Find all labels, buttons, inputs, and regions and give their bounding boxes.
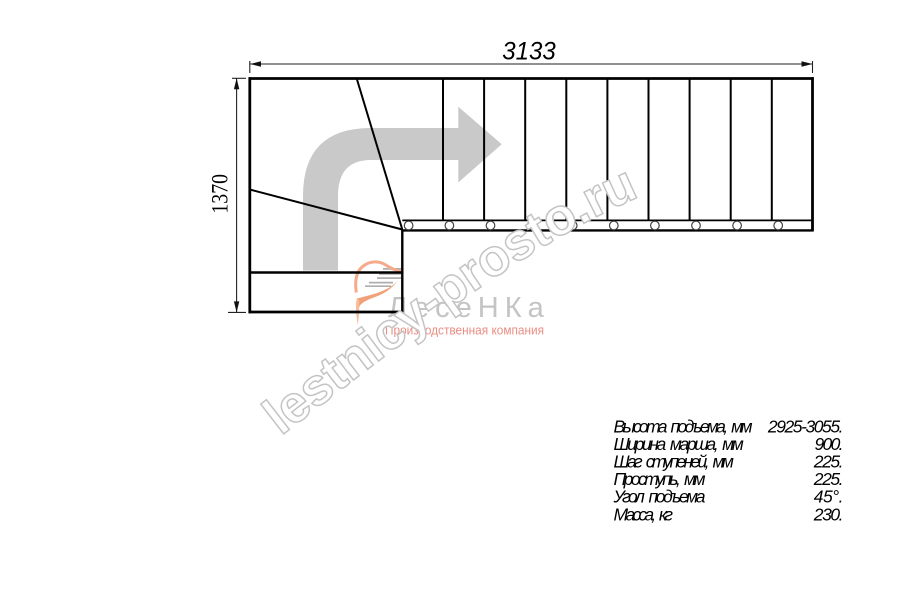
svg-text:1370: 1370	[208, 174, 233, 214]
svg-text:Масса, кг: Масса, кг	[614, 504, 674, 524]
svg-text:3133: 3133	[502, 38, 556, 66]
svg-text:230.: 230.	[813, 504, 844, 524]
